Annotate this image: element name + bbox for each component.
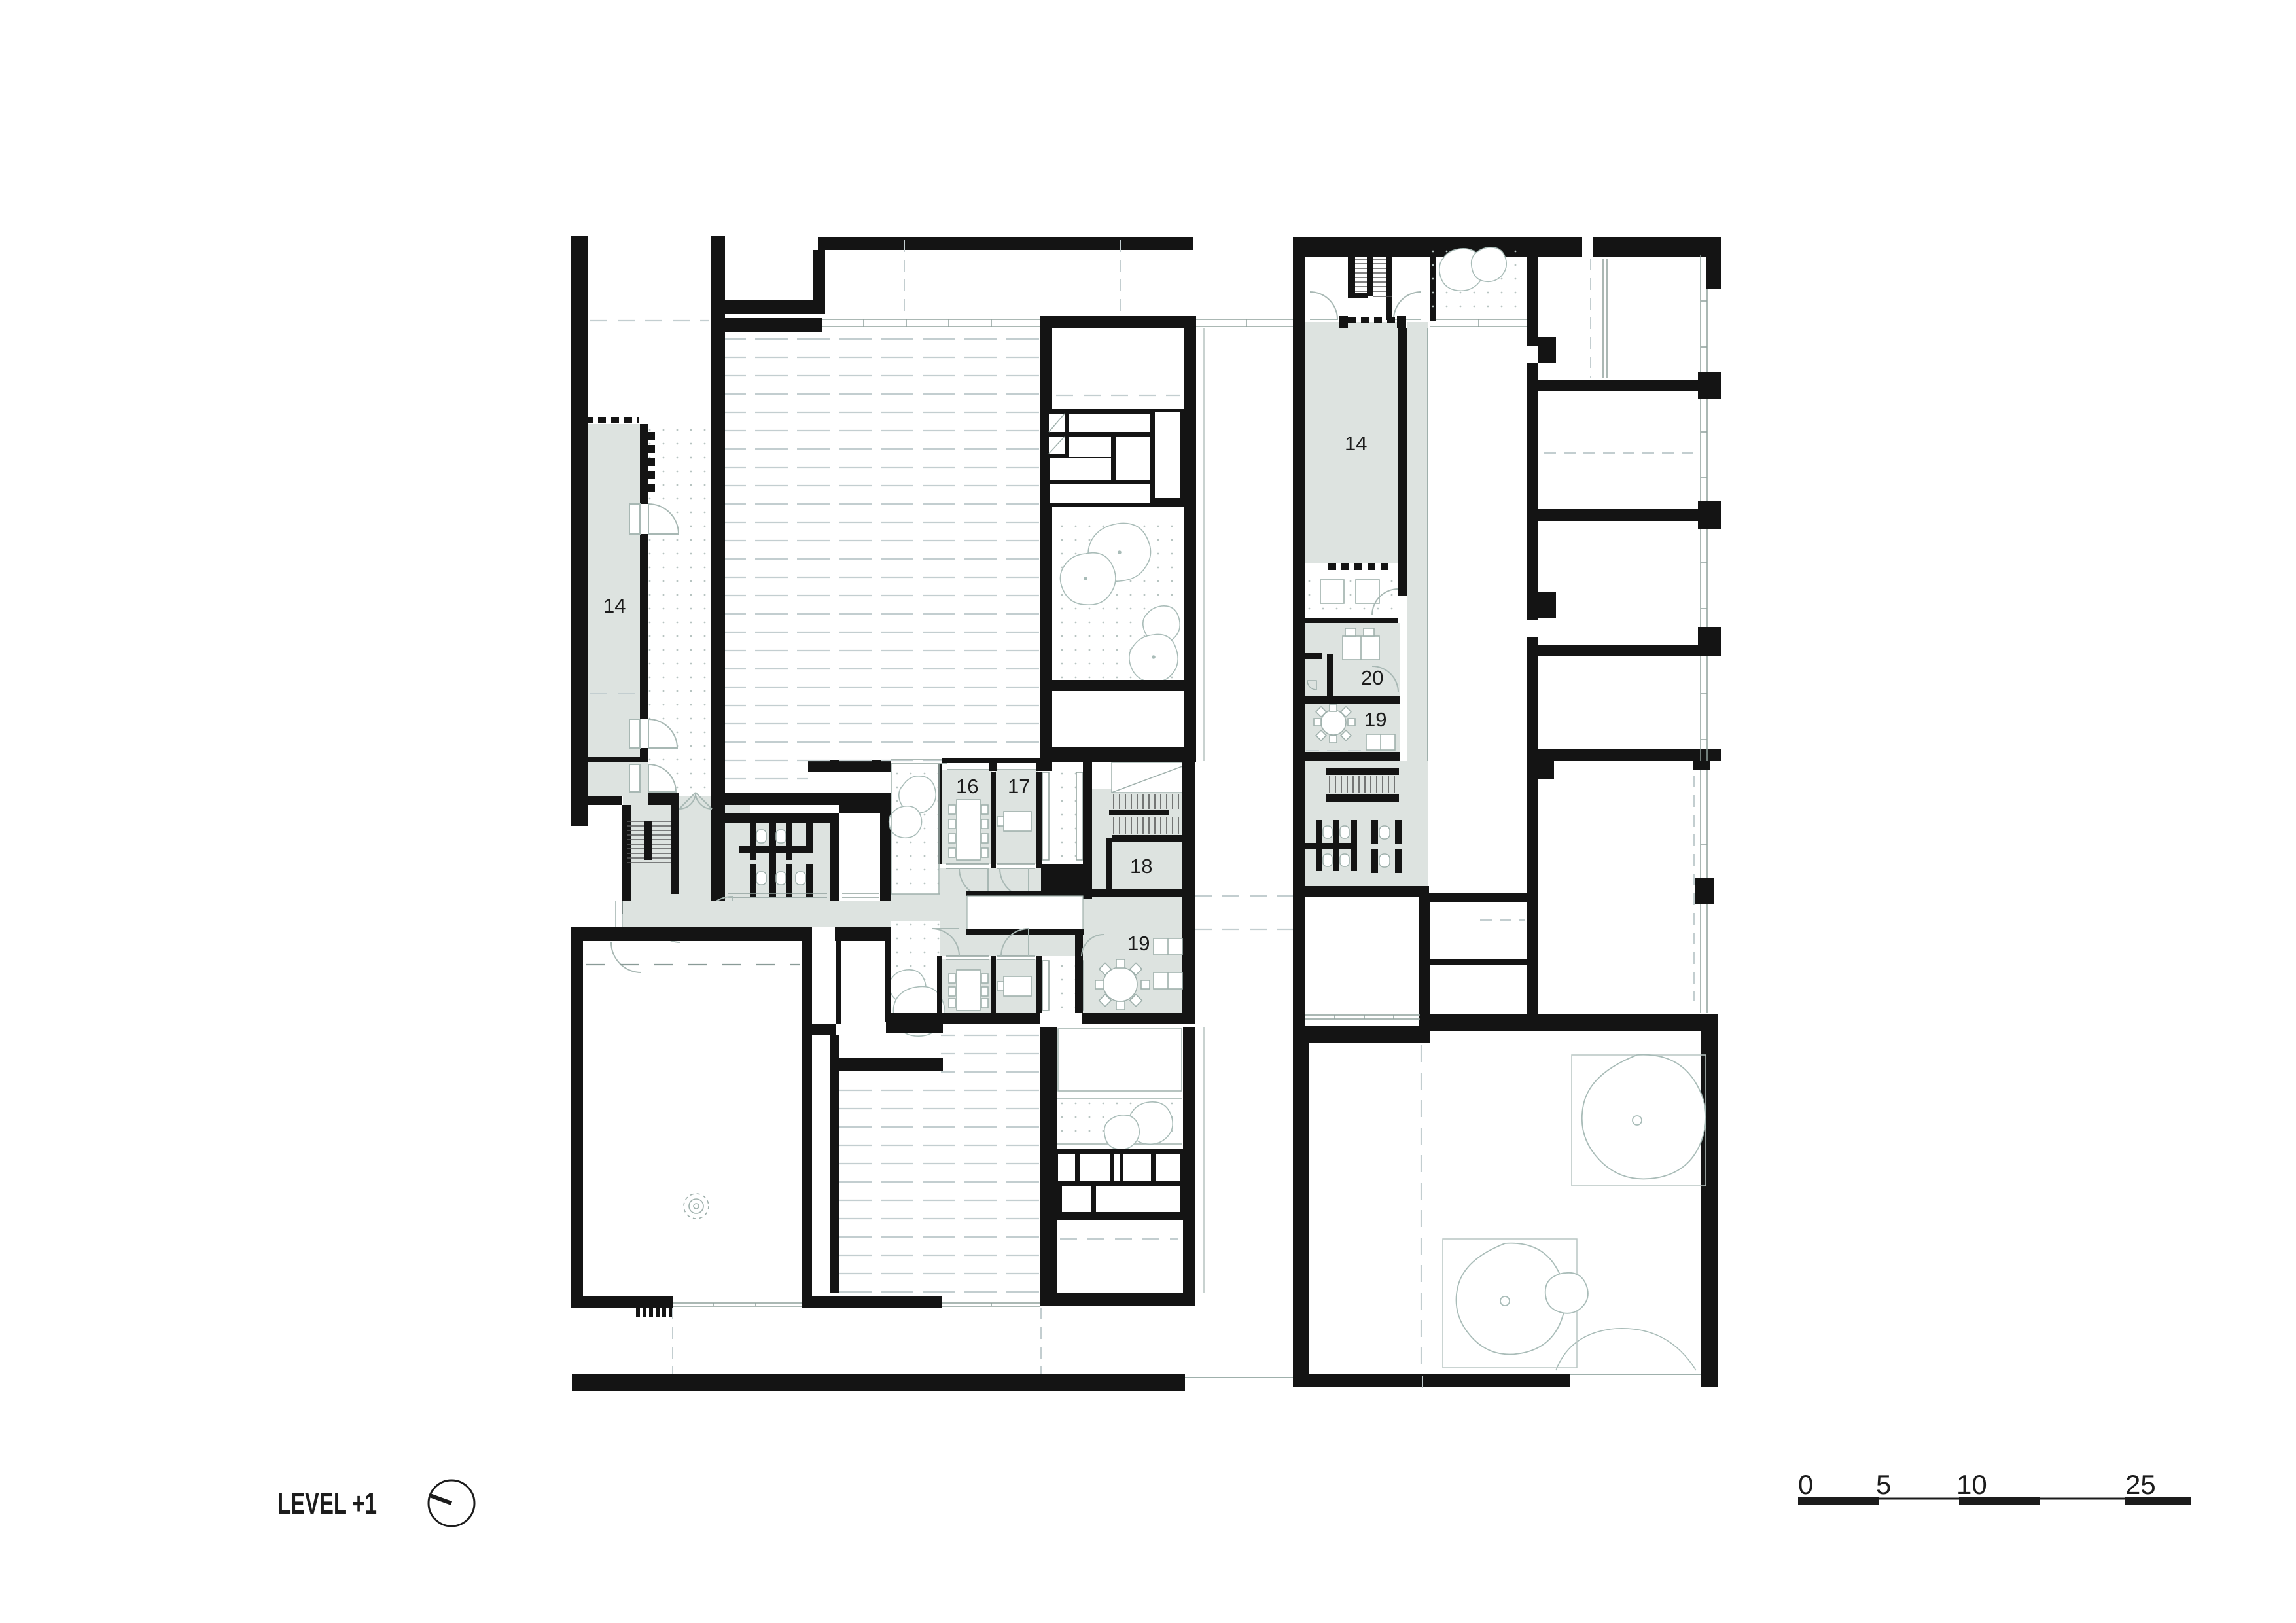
svg-text:25: 25: [2125, 1469, 2156, 1500]
svg-text:5: 5: [1876, 1469, 1891, 1500]
svg-text:0: 0: [1798, 1469, 1813, 1500]
svg-text:17: 17: [1008, 775, 1030, 798]
svg-text:16: 16: [956, 775, 978, 798]
svg-text:14: 14: [603, 594, 626, 617]
svg-text:19: 19: [1127, 932, 1150, 955]
svg-text:10: 10: [1956, 1469, 1987, 1500]
svg-text:18: 18: [1130, 855, 1152, 878]
svg-text:LEVEL +1: LEVEL +1: [277, 1486, 377, 1520]
svg-text:14: 14: [1345, 432, 1367, 455]
svg-text:20: 20: [1361, 666, 1383, 689]
svg-text:19: 19: [1364, 708, 1386, 731]
